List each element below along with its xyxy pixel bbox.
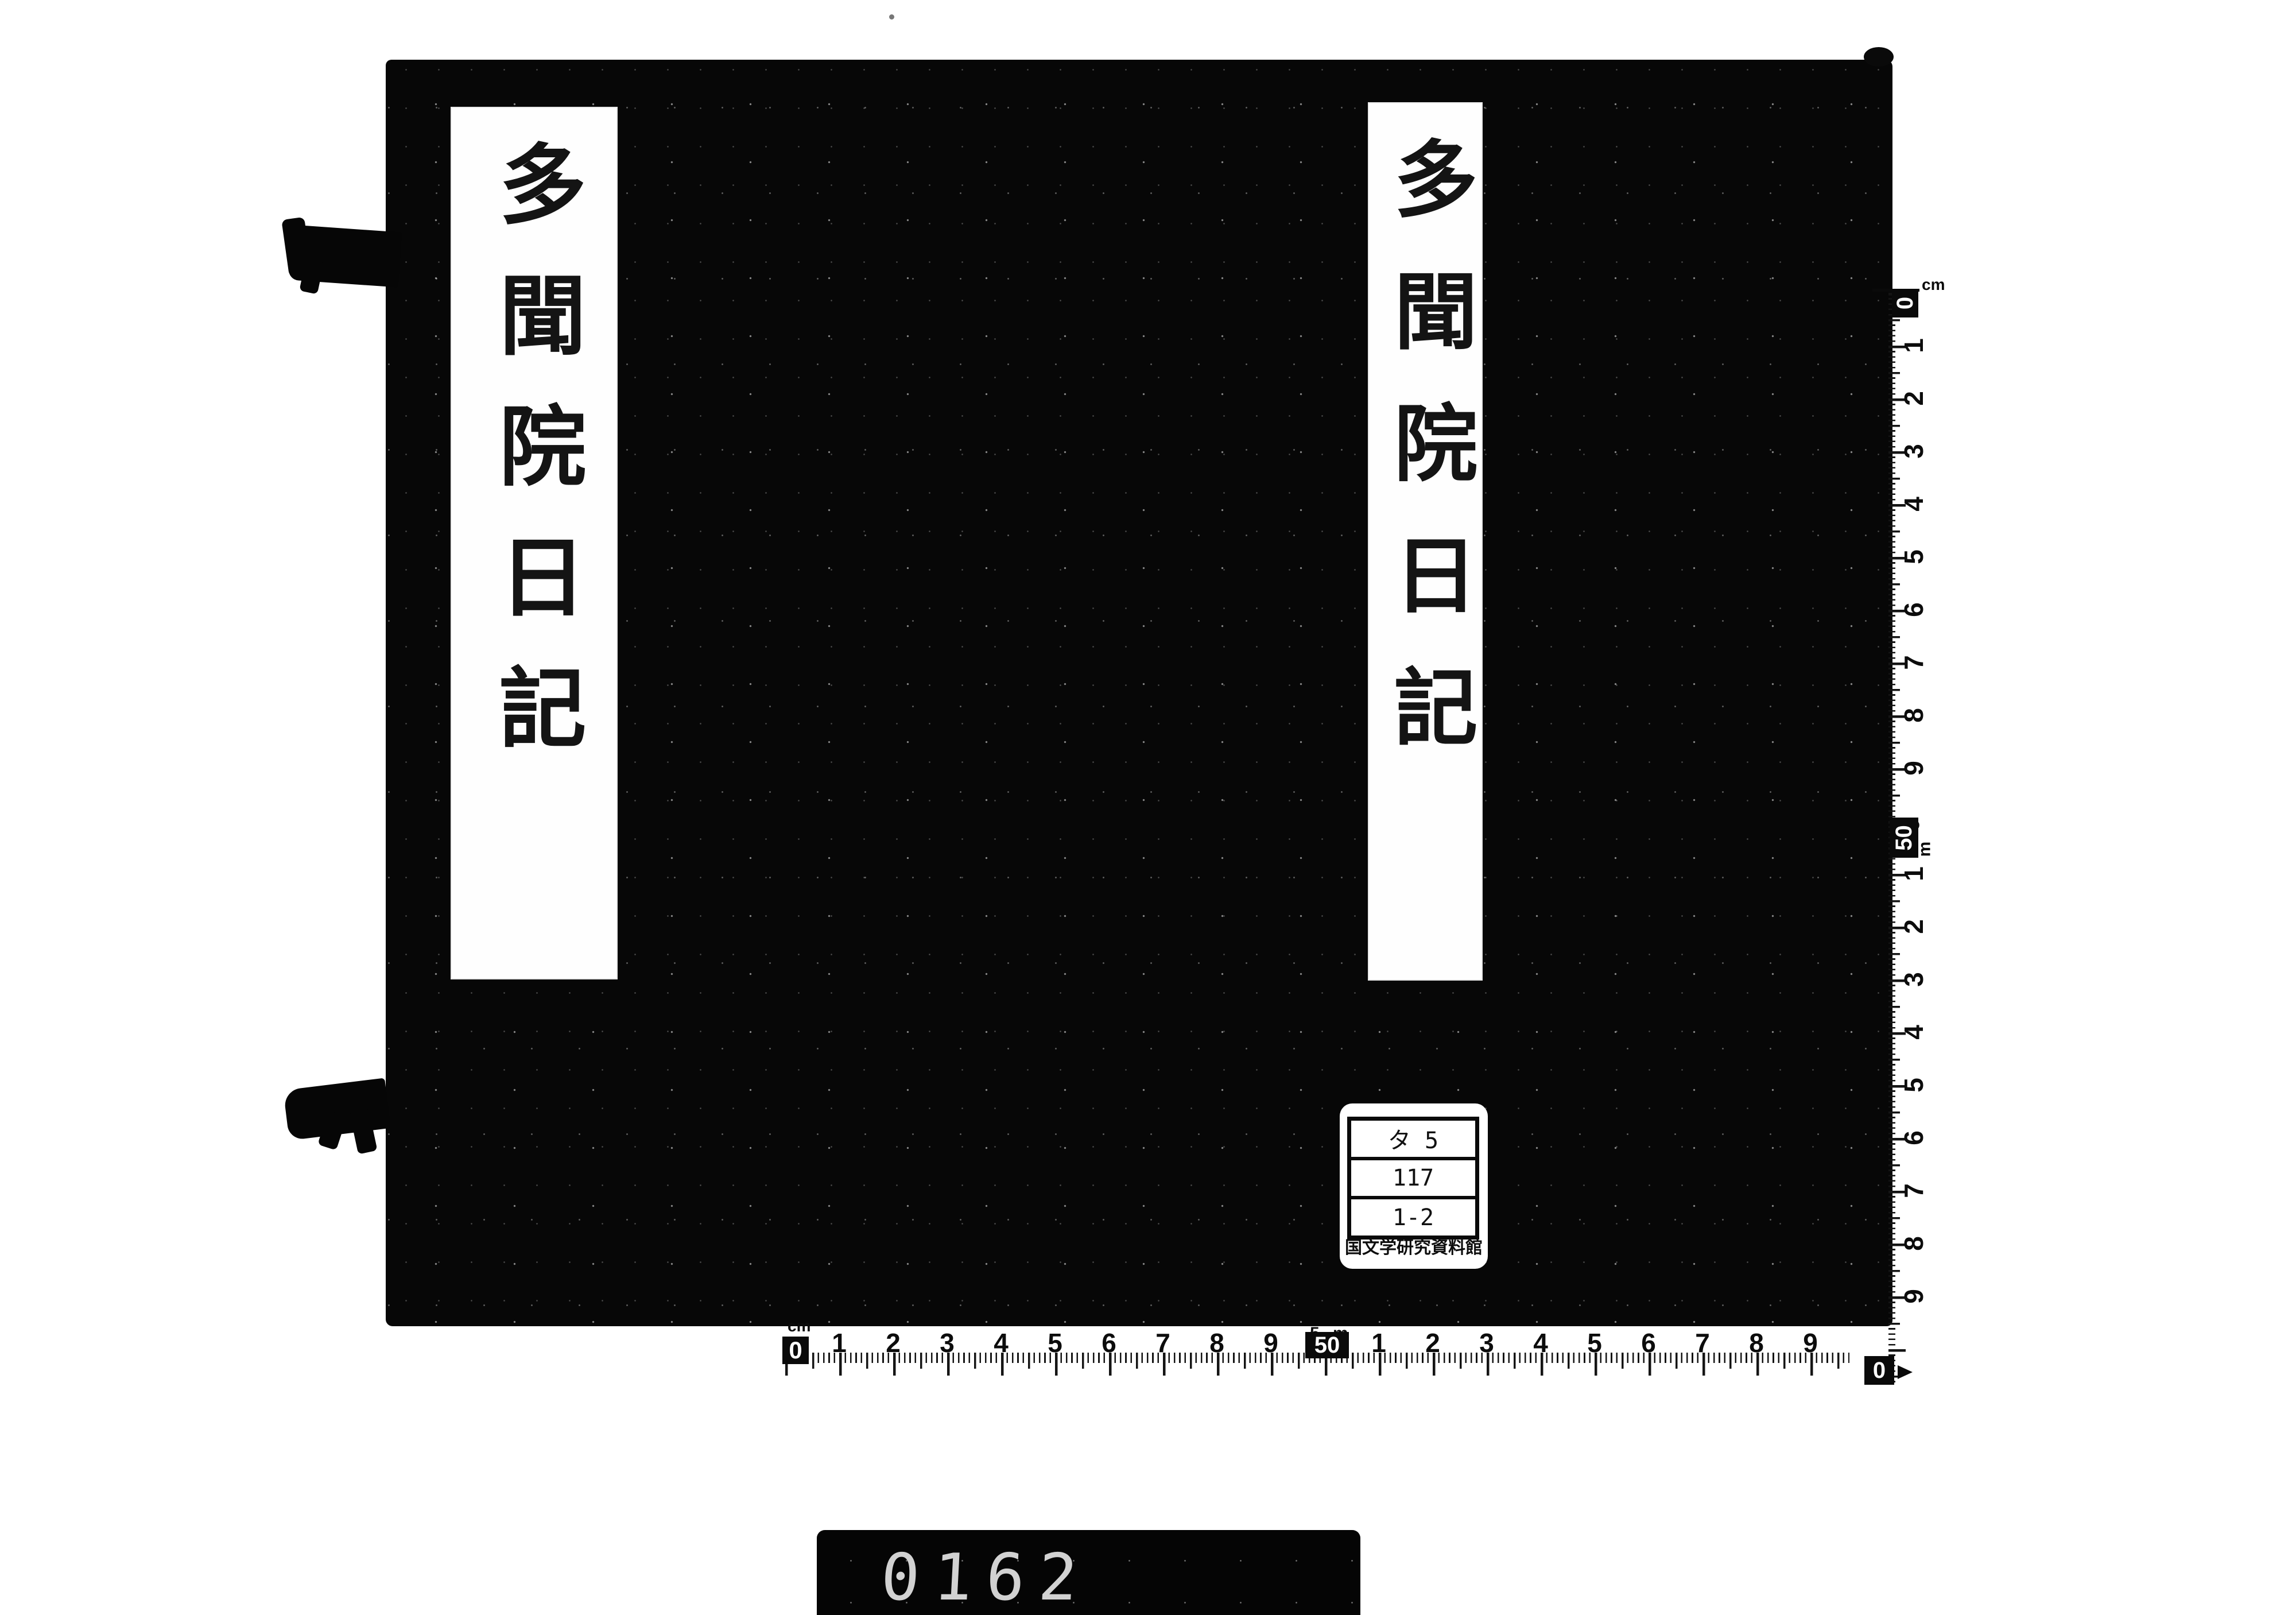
ruler-right-number: 1 [1898,866,1929,881]
ruler-bottom-number: 3 [940,1327,955,1358]
title-text-left: 多聞院日記 [471,107,598,1012]
ruler-bottom-number: 7 [1695,1327,1710,1358]
call-number-table: タ 5 117 1-2 [1347,1117,1479,1240]
title-text-right: 多聞院日記 [1368,102,1489,1014]
ruler-right-number: 8 [1898,1236,1929,1251]
ruler-right-number: 9 [1898,761,1929,776]
ruler-bottom-number: 9 [1803,1327,1818,1358]
ruler-bottom-number: 1 [1371,1327,1386,1358]
ruler-bottom-number: 8 [1749,1327,1764,1358]
ruler-bottom-zero-box: 0 [782,1337,809,1364]
ruler-bottom-number: 4 [994,1327,1009,1358]
ruler-bottom-number: 4 [1533,1327,1548,1358]
ruler-right-unit-label: cm [1922,276,1945,294]
ruler-right-number: 2 [1898,391,1929,406]
ruler-bottom-number: 5 [1587,1327,1602,1358]
ruler-bottom-number: 2 [1425,1327,1440,1358]
ruler-right-number: 5 [1898,549,1929,564]
ruler-right-number: 7 [1898,1183,1929,1198]
institution-name: 国文学研究資料館 [1343,1233,1484,1258]
ruler-bottom-number: 5 [1048,1327,1062,1358]
call-number-row-2: 117 [1351,1160,1475,1200]
call-number-row-3: 1-2 [1351,1199,1475,1236]
scan-page: 多聞院日記 多聞院日記 タ 5 117 1-2 国文学研究資料館 cm 0 5 … [0,0,2296,1615]
ruler-bottom-number: 1 [832,1327,847,1358]
ruler-right-fifty-label: 50 [1891,825,1917,851]
ruler-right-fifty-box: 50 [1890,818,1918,858]
scan-speck [889,14,894,20]
ruler-right-number: 5 [1898,1078,1929,1093]
ruler-bottom-number: 6 [1641,1327,1656,1358]
ruler-right-number: 7 [1898,655,1929,670]
ruler-right-number: 6 [1898,1130,1929,1145]
corner-smudge [1864,47,1894,67]
ruler-right-number: 9 [1898,1289,1929,1304]
ruler-right-number: 6 [1898,602,1929,617]
call-number-label: タ 5 117 1-2 国文学研究資料館 [1340,1103,1488,1269]
ruler-right-number: 1 [1898,338,1929,353]
ruler-bottom-number: 9 [1263,1327,1278,1358]
ruler-right-number: 3 [1898,444,1929,459]
ruler-right-number: 4 [1898,1025,1929,1040]
ruler-bottom-unit-label: cm [788,1317,810,1335]
ruler-bottom-number: 6 [1102,1327,1116,1358]
ruler-corner-mark [1898,1365,1913,1379]
title-slip-right: 多聞院日記 [1368,102,1483,981]
ruler-bottom-fifty-box: 50 [1305,1332,1349,1358]
ruler-bottom-number: 8 [1209,1327,1224,1358]
call-number-row-1: タ 5 [1351,1121,1475,1160]
frame-counter-digits: 0162 [879,1540,1093,1615]
title-slip-left: 多聞院日記 [451,107,618,979]
ruler-bottom-number: 3 [1479,1327,1494,1358]
ruler-corner-box: 0 [1864,1356,1894,1385]
ruler-right-number: 3 [1898,972,1929,987]
ruler-right-zero-box: 0 [1892,289,1918,317]
ruler-bottom-number: 2 [886,1327,901,1358]
frame-counter-strip: 0162 [817,1530,1360,1615]
ruler-right-number: 8 [1898,708,1929,723]
ruler-right-number: 4 [1898,497,1929,512]
ruler-right-number: 2 [1898,919,1929,934]
ruler-bottom-number: 7 [1155,1327,1170,1358]
